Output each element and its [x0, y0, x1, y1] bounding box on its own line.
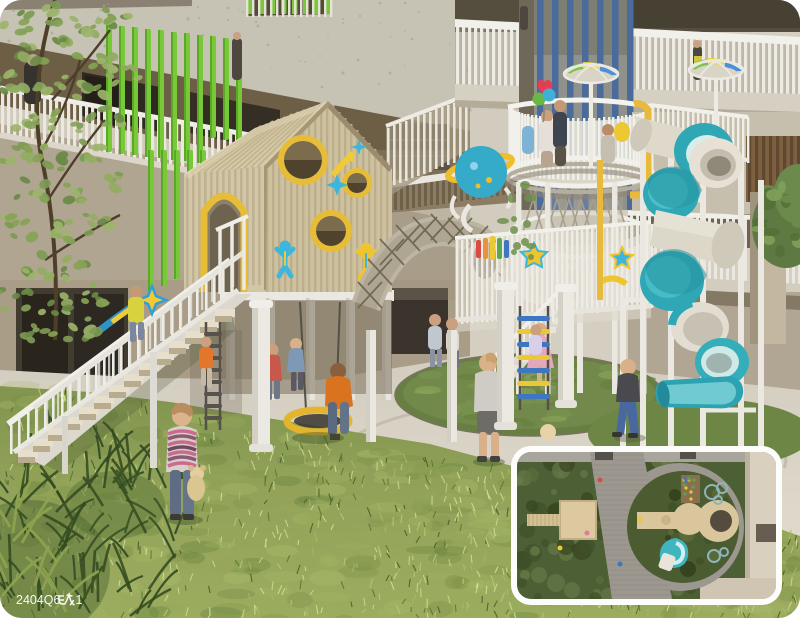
svg-text:2404Q6: 2404Q6: [16, 593, 61, 607]
svg-text:1: 1: [76, 593, 83, 607]
